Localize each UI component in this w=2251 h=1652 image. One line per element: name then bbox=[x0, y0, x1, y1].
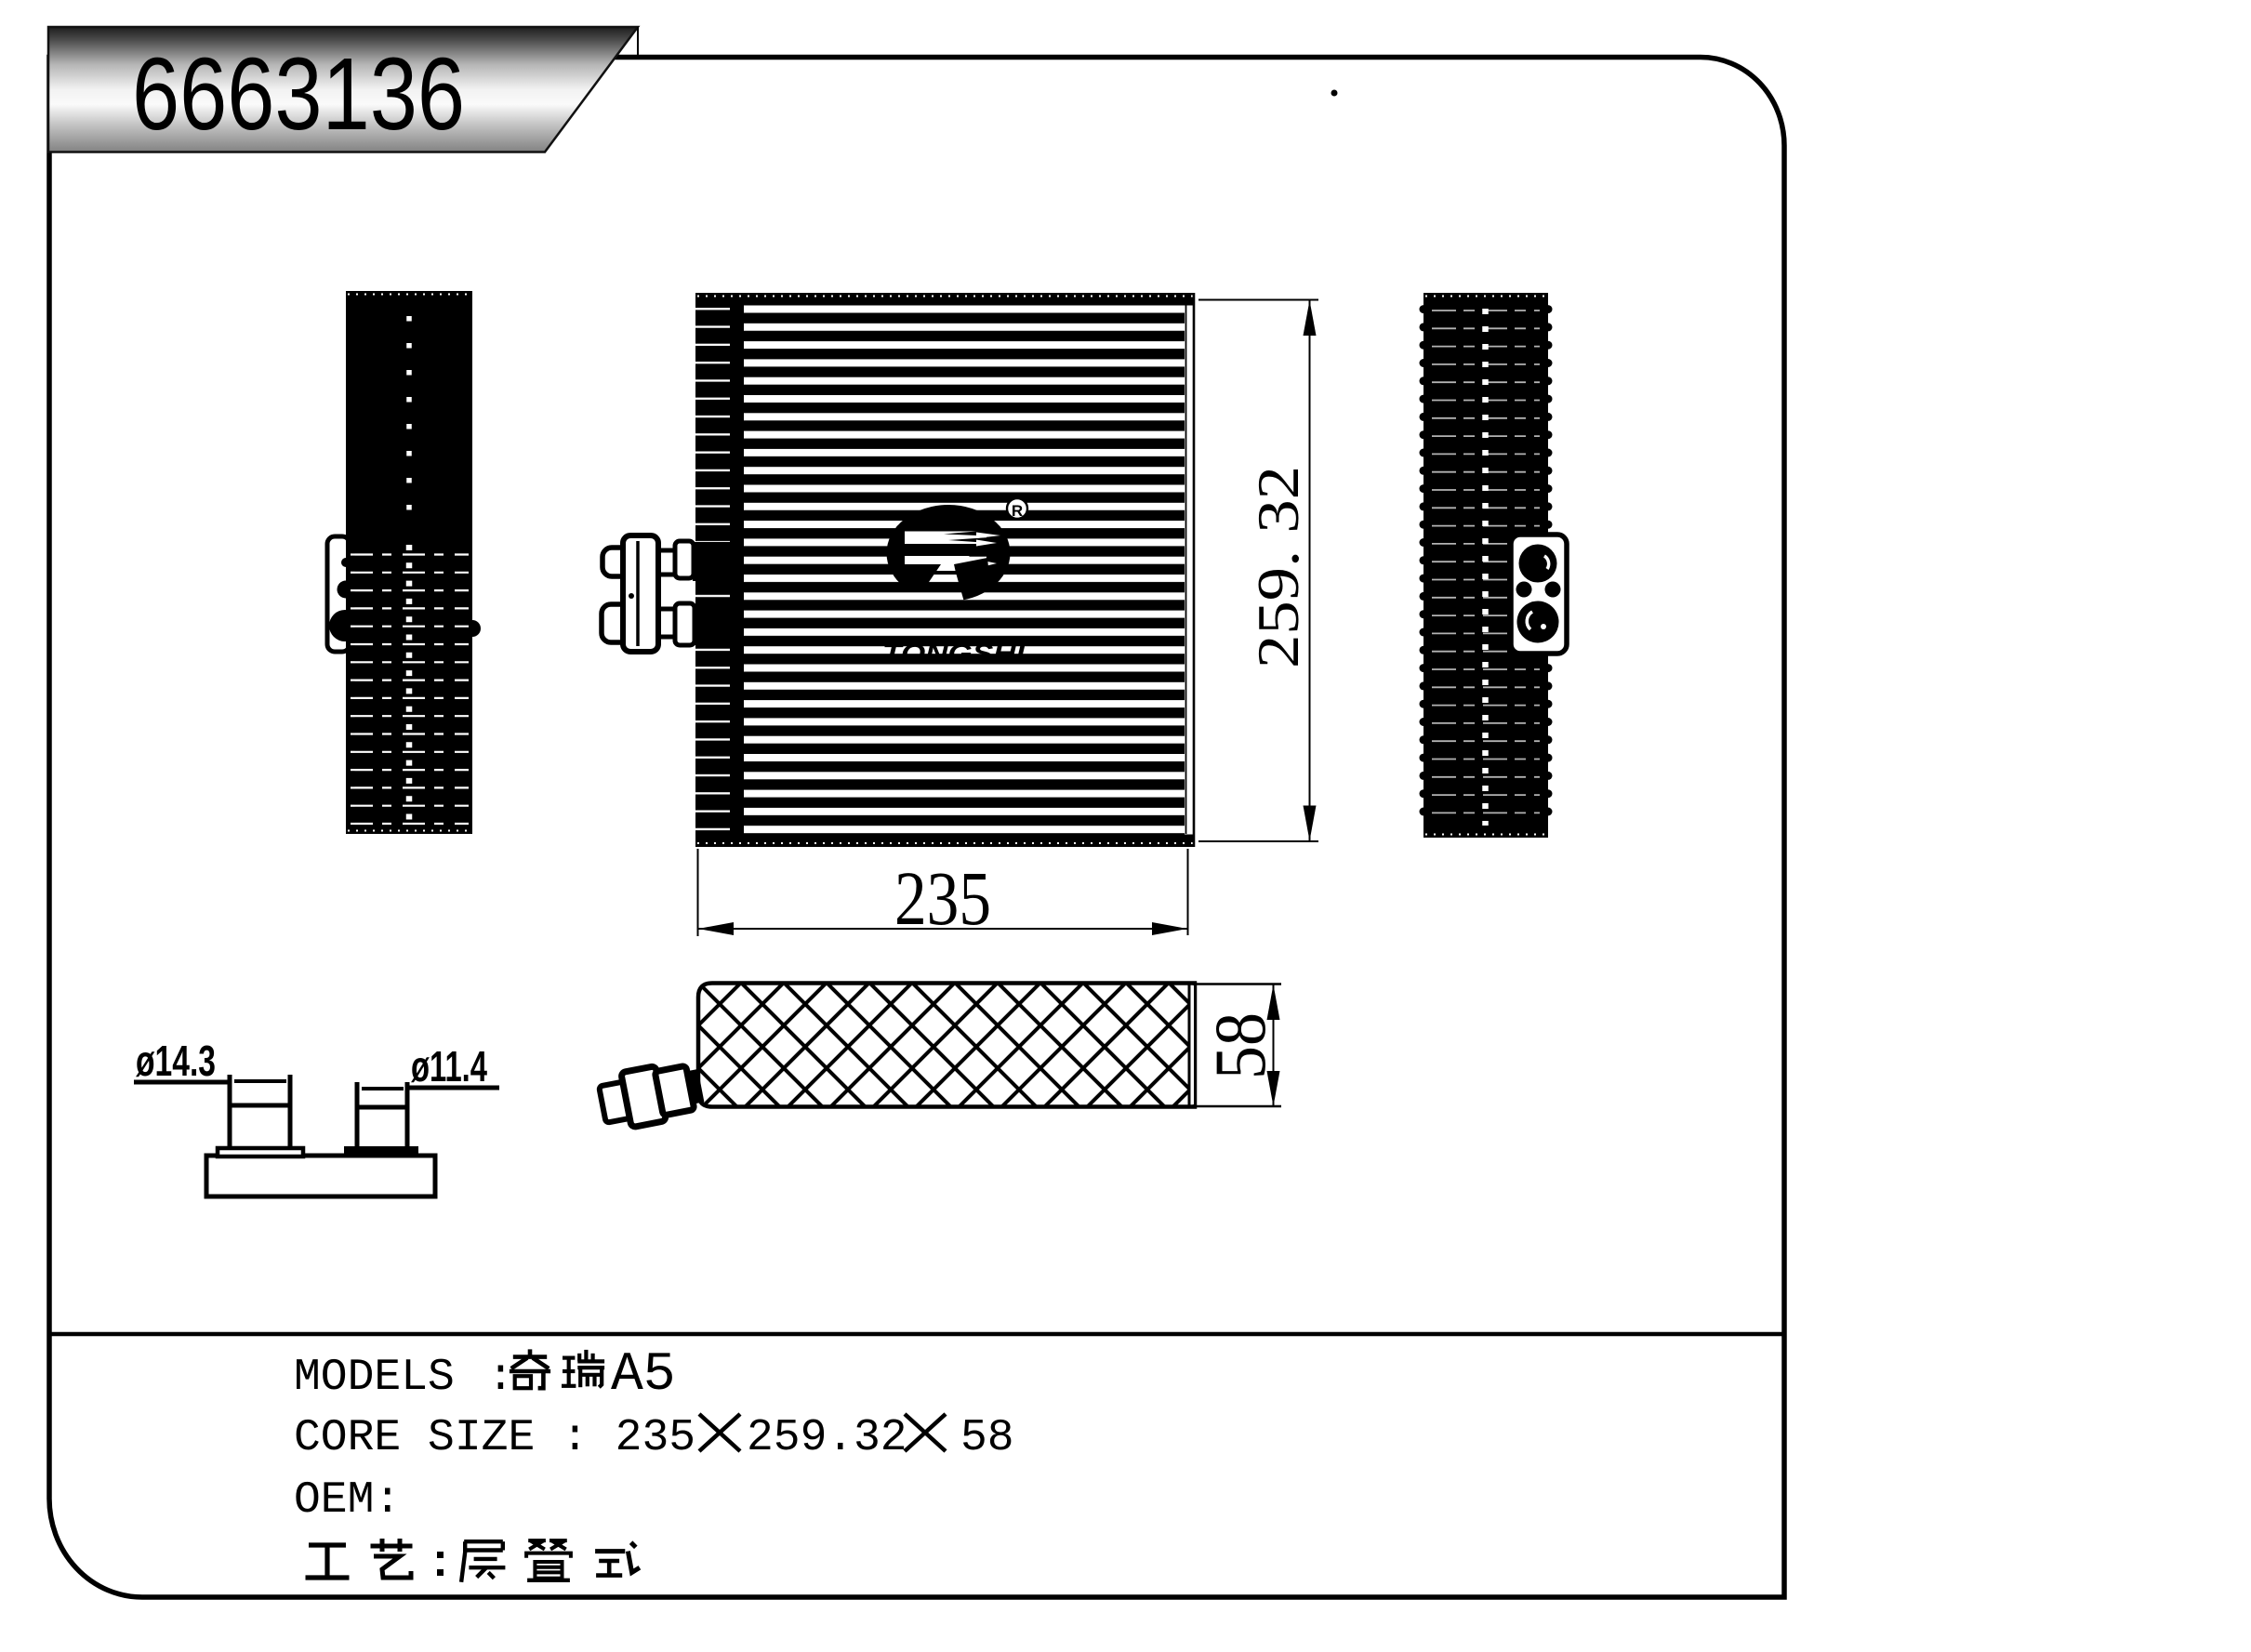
svg-text:32: 32 bbox=[854, 1413, 907, 1463]
svg-text:OEM:: OEM: bbox=[294, 1475, 401, 1526]
svg-text::: : bbox=[487, 1353, 514, 1403]
svg-text:A5: A5 bbox=[611, 1345, 676, 1406]
svg-text:235: 235 bbox=[894, 855, 991, 941]
svg-text:58: 58 bbox=[960, 1413, 1014, 1463]
svg-text:259.: 259. bbox=[747, 1413, 854, 1463]
svg-text:6663136: 6663136 bbox=[132, 37, 465, 152]
svg-text:ø11.4: ø11.4 bbox=[411, 1042, 487, 1090]
svg-text:CORE SIZE : 235: CORE SIZE : 235 bbox=[294, 1413, 695, 1463]
svg-text:MODELS: MODELS bbox=[294, 1353, 455, 1403]
svg-text:58: 58 bbox=[1199, 1012, 1280, 1079]
svg-text:ø14.3: ø14.3 bbox=[136, 1037, 216, 1085]
svg-text:259. 32: 259. 32 bbox=[1245, 466, 1311, 668]
svg-text:TONGSHI: TONGSHI bbox=[882, 639, 1026, 667]
svg-text:R: R bbox=[1012, 502, 1023, 520]
